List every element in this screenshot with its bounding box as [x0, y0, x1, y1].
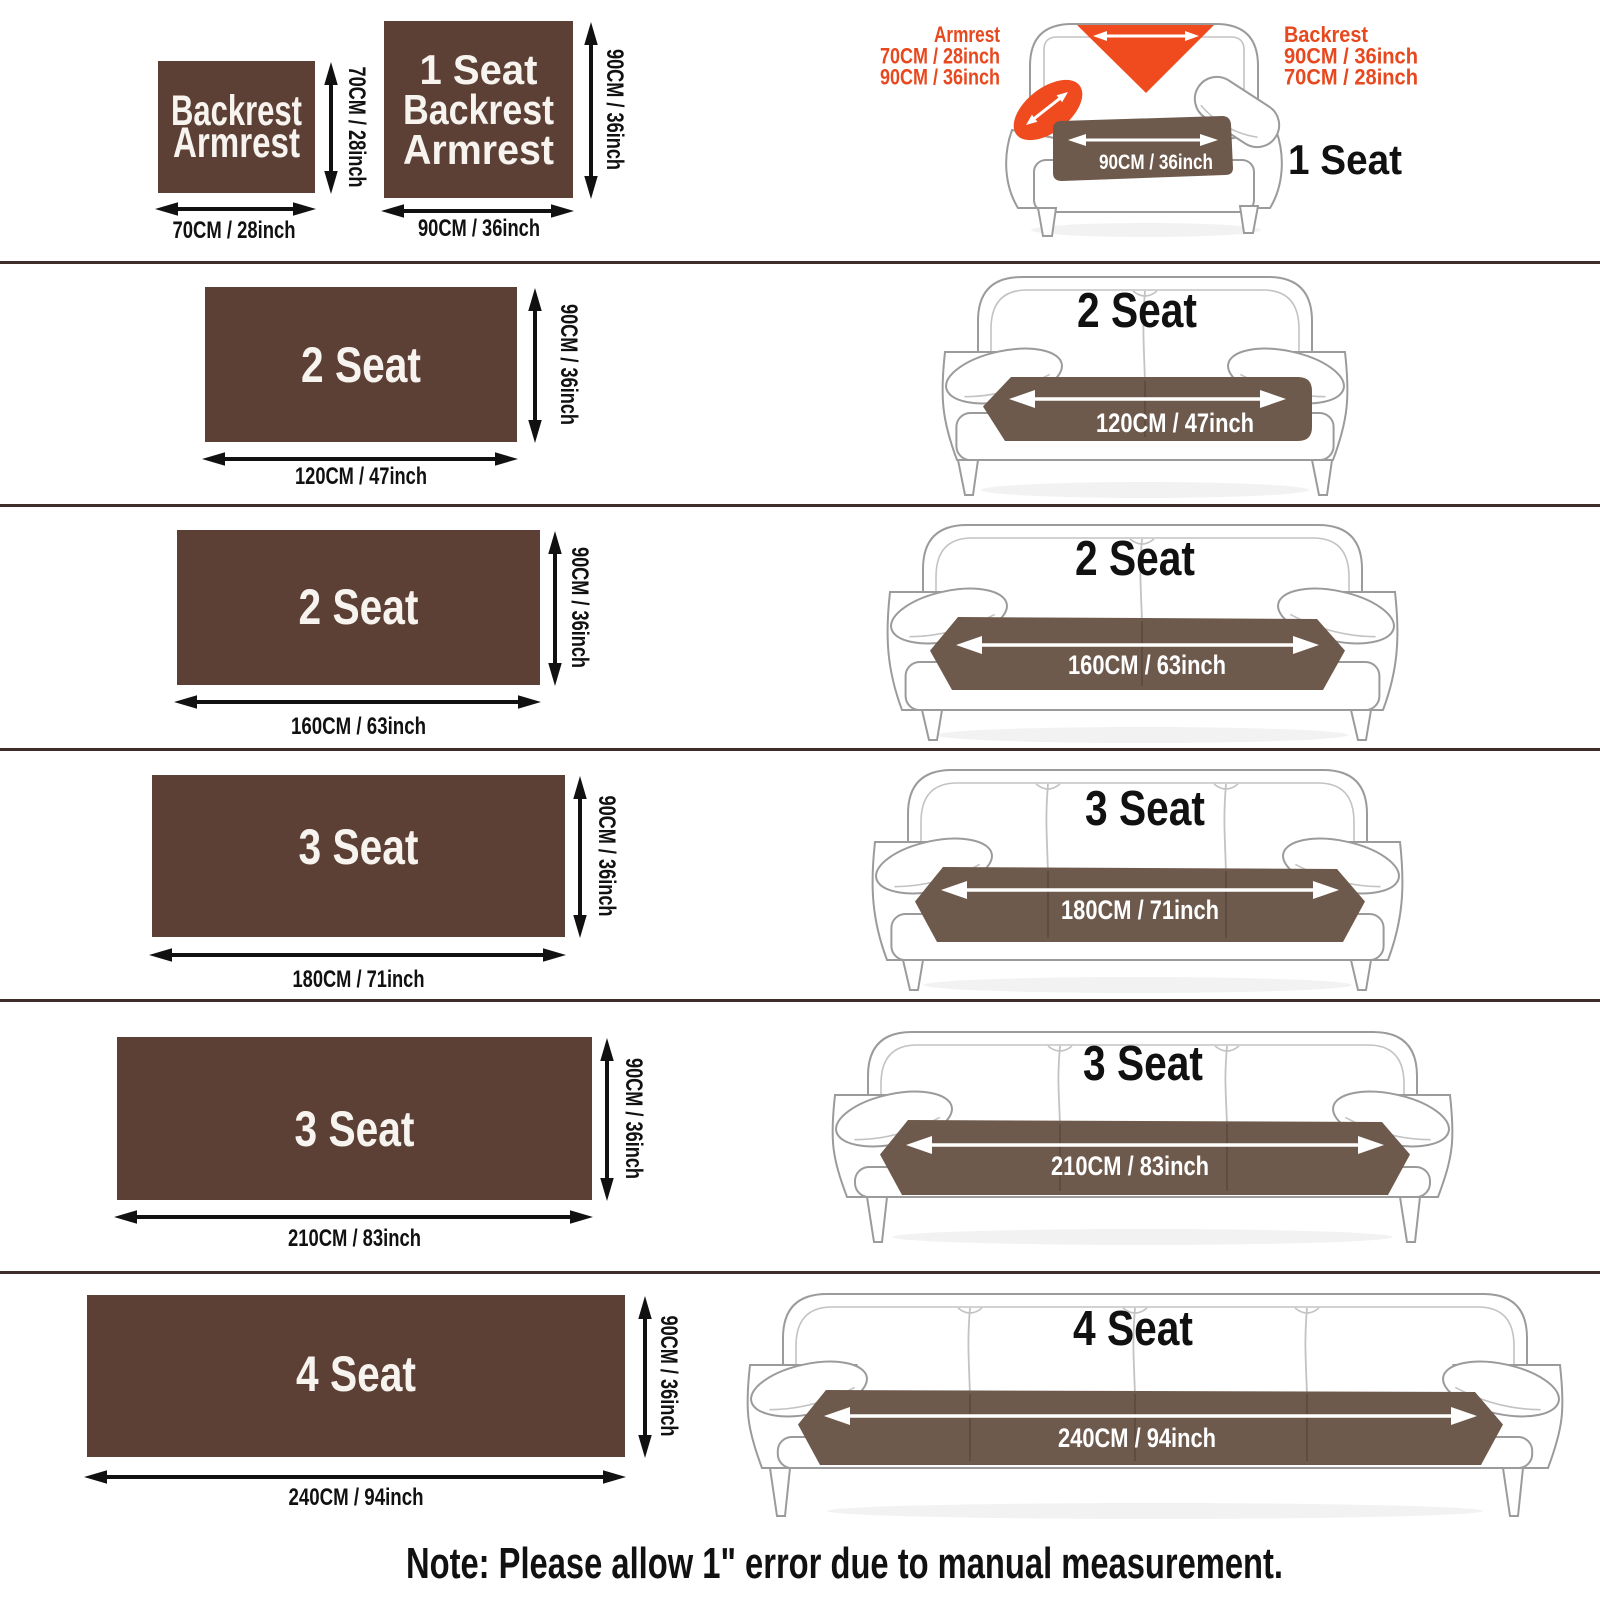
svg-text:3 Seat: 3 Seat [1085, 782, 1205, 836]
svg-text:2 Seat: 2 Seat [299, 579, 419, 635]
svg-text:Armrest: Armrest [173, 119, 300, 167]
svg-text:120CM / 47inch: 120CM / 47inch [1096, 408, 1254, 438]
svg-text:4 Seat: 4 Seat [1073, 1302, 1193, 1356]
svg-text:210CM / 83inch: 210CM / 83inch [288, 1225, 421, 1252]
svg-text:3 Seat: 3 Seat [299, 819, 419, 875]
svg-text:90CM / 36inch: 90CM / 36inch [601, 49, 628, 170]
svg-text:90CM / 36inch: 90CM / 36inch [593, 796, 620, 917]
svg-text:2 Seat: 2 Seat [1077, 284, 1197, 338]
svg-text:70CM / 28inch: 70CM / 28inch [1284, 65, 1418, 90]
svg-text:90CM / 36inch: 90CM / 36inch [880, 65, 1000, 90]
svg-text:Armrest: Armrest [403, 126, 554, 173]
svg-text:160CM / 63inch: 160CM / 63inch [1068, 650, 1226, 680]
svg-text:70CM / 28inch: 70CM / 28inch [173, 217, 296, 244]
svg-text:210CM / 83inch: 210CM / 83inch [1051, 1151, 1209, 1181]
svg-text:3 Seat: 3 Seat [295, 1101, 415, 1157]
svg-text:3 Seat: 3 Seat [1083, 1037, 1203, 1091]
svg-text:1 Seat: 1 Seat [1288, 136, 1402, 183]
svg-text:180CM / 71inch: 180CM / 71inch [1061, 895, 1219, 925]
svg-text:90CM / 36inch: 90CM / 36inch [555, 304, 582, 425]
svg-text:180CM / 71inch: 180CM / 71inch [293, 966, 425, 993]
svg-text:90CM / 36inch: 90CM / 36inch [620, 1058, 647, 1179]
svg-text:2 Seat: 2 Seat [1075, 532, 1195, 586]
svg-text:Note: Please allow 1" error du: Note: Please allow 1" error due to manua… [406, 1539, 1283, 1588]
svg-text:2 Seat: 2 Seat [301, 337, 421, 393]
svg-text:90CM / 36inch: 90CM / 36inch [655, 1316, 682, 1437]
svg-text:160CM / 63inch: 160CM / 63inch [291, 713, 426, 740]
svg-text:90CM / 36inch: 90CM / 36inch [566, 547, 593, 668]
svg-text:120CM / 47inch: 120CM / 47inch [295, 463, 427, 490]
svg-text:70CM / 28inch: 70CM / 28inch [343, 67, 370, 188]
svg-text:90CM / 36inch: 90CM / 36inch [418, 215, 540, 242]
svg-text:240CM / 94inch: 240CM / 94inch [289, 1484, 424, 1511]
svg-text:4 Seat: 4 Seat [296, 1346, 416, 1402]
svg-text:90CM / 36inch: 90CM / 36inch [1099, 151, 1213, 174]
svg-text:240CM / 94inch: 240CM / 94inch [1058, 1423, 1216, 1453]
